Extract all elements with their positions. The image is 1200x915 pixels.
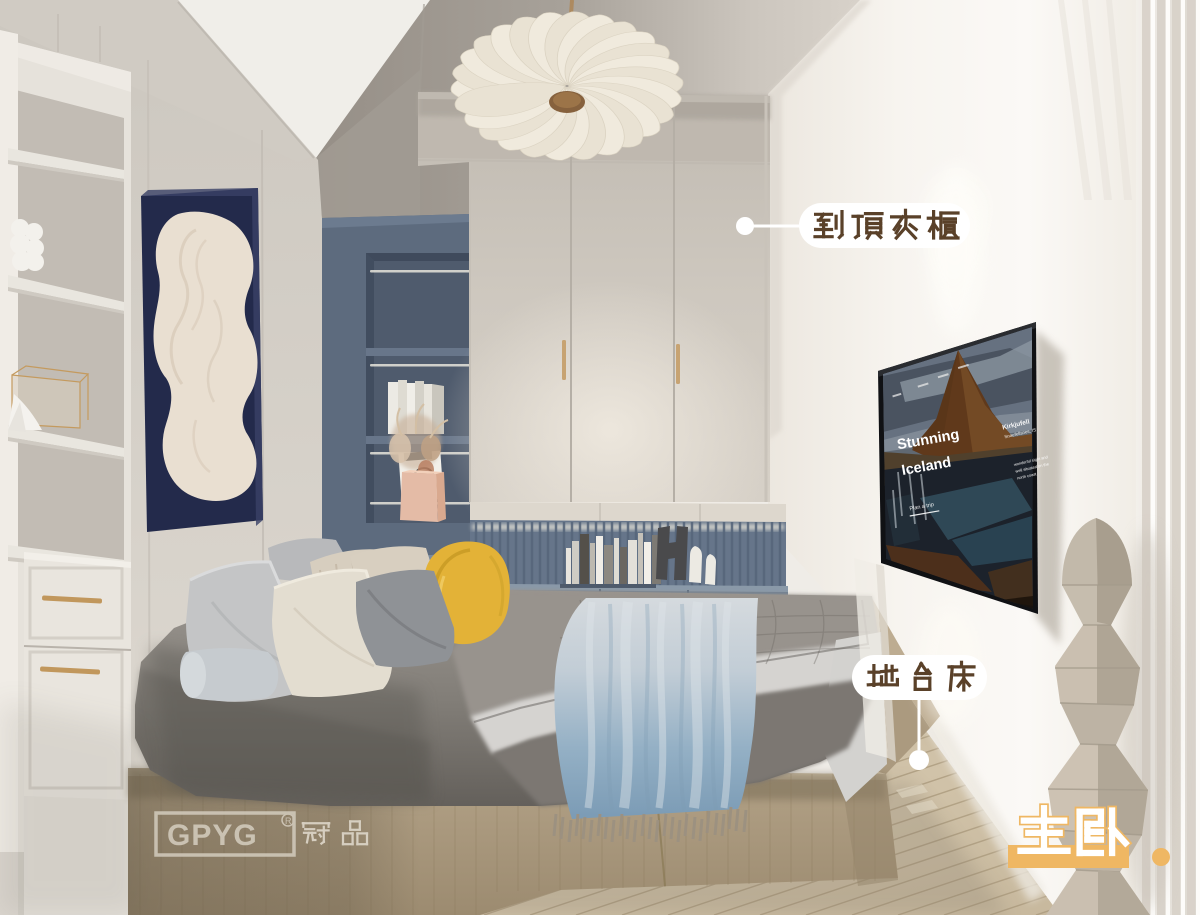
svg-text:GPYG: GPYG xyxy=(167,819,258,852)
svg-text:R: R xyxy=(285,816,292,826)
